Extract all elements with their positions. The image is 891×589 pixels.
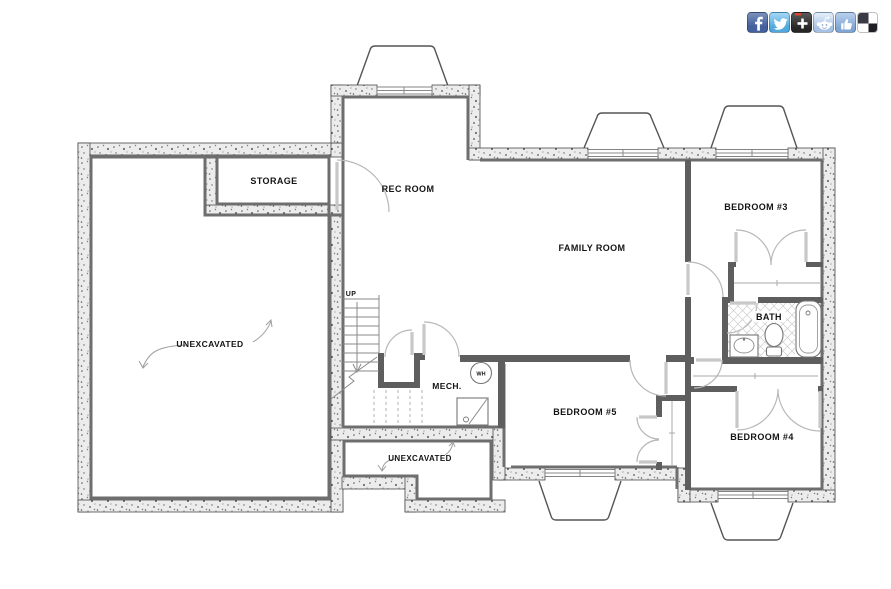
bath-label: BATH — [756, 312, 782, 322]
mech-label: MECH. — [432, 381, 461, 391]
bedroom5-label: BEDROOM #5 — [553, 407, 617, 417]
bedroom3-door — [688, 262, 723, 297]
mech-door — [424, 322, 459, 357]
water-heater-label: WH — [476, 372, 485, 378]
bathroom-fixtures — [728, 301, 821, 357]
window-bedroom3 — [716, 150, 788, 157]
bedroom4-door — [694, 360, 722, 388]
page: UP — [0, 0, 891, 589]
bedroom5-closet-doors — [637, 417, 659, 462]
stair-up-label: UP — [346, 291, 357, 298]
unexcavated-bottom-label: UNEXCAVATED — [388, 454, 452, 463]
family-room-label: FAMILY ROOM — [559, 243, 626, 253]
window-well-rec-room — [357, 46, 448, 86]
rec-room-label: REC ROOM — [382, 184, 435, 194]
storage-label: STORAGE — [250, 176, 297, 186]
furnace — [457, 398, 488, 425]
water-heater: WH — [471, 363, 492, 384]
toilet — [765, 324, 783, 357]
floor-plan-drawing: UP — [0, 0, 891, 589]
stair-projection-dashes — [374, 390, 422, 426]
unexcavated-left-label: UNEXCAVATED — [176, 339, 243, 349]
bedroom3-closet-doors — [736, 230, 806, 265]
window-family-room — [588, 150, 658, 157]
bedroom4-label: BEDROOM #4 — [730, 432, 794, 442]
floor-plan: UP — [0, 0, 891, 589]
bedroom5-door — [630, 360, 666, 396]
bedroom3-label: BEDROOM #3 — [724, 202, 788, 212]
staircase: UP — [331, 291, 422, 426]
window-bedroom4 — [718, 492, 788, 499]
window-well-family-room — [584, 113, 664, 148]
sink-vanity — [730, 335, 758, 357]
window-well-bedroom3 — [711, 106, 797, 148]
bedroom4-closet-doors — [737, 389, 820, 431]
window-well-bedroom4 — [711, 503, 793, 540]
stair-closet-door — [385, 330, 412, 357]
window-bedroom5 — [545, 470, 615, 477]
bathtub — [796, 301, 821, 357]
mechanical-equipment: WH — [457, 363, 492, 426]
window-well-bedroom5 — [539, 481, 621, 520]
window-rec-room — [377, 87, 432, 94]
